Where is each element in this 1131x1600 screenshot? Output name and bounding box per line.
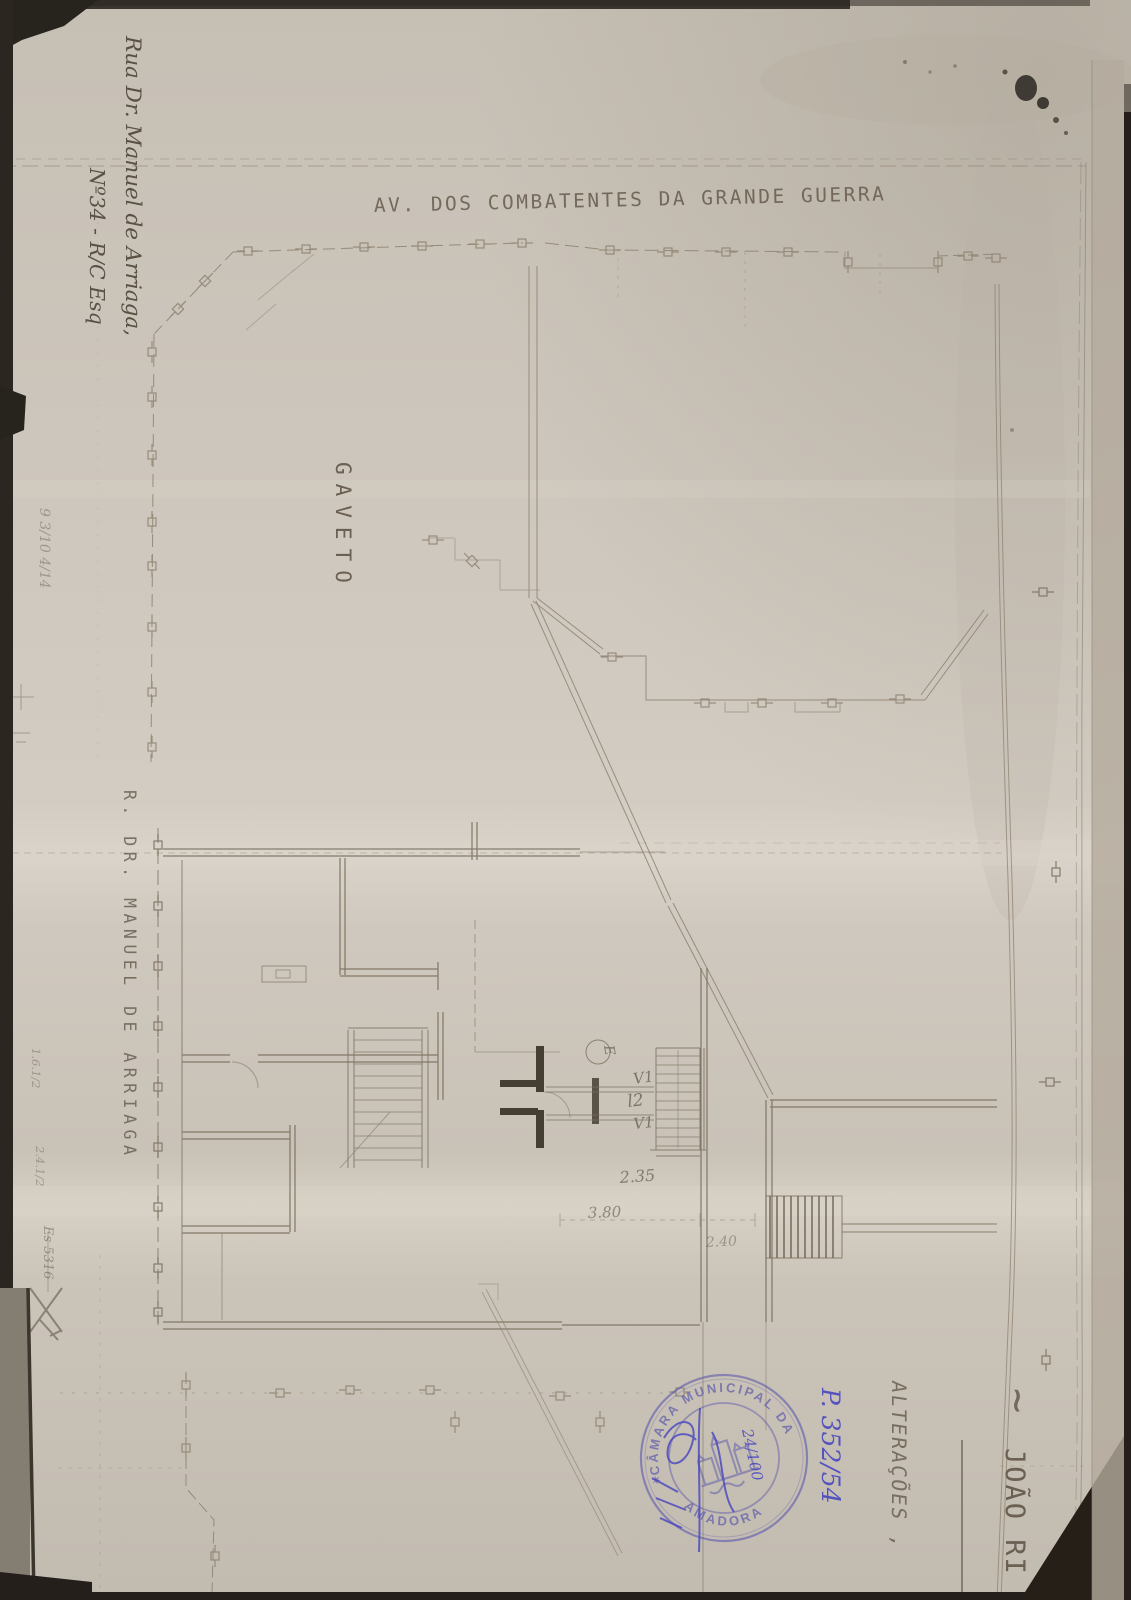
pencil-note-top-margin: 9 3/10 4/14 — [36, 508, 52, 589]
paper — [0, 0, 1131, 1600]
dim-2-35: 2.35 — [618, 1166, 656, 1188]
dim-3-80: 3.80 — [588, 1203, 622, 1222]
subject-alteracoes: ALTERAÇÕES , — [887, 1379, 911, 1551]
pencil-note-1: 1.6.1/2 — [29, 1048, 43, 1088]
street-label-left: R. DR. MANUEL DE ARRIAGA — [120, 790, 139, 1160]
handwritten-address-line1: Rua Dr. Manuel de Arriaga, — [120, 35, 145, 336]
pencil-note-2: 2.4.1/2 — [33, 1145, 47, 1186]
dim-2-40: 2.40 — [704, 1233, 737, 1251]
door-label-l2: l2 — [626, 1090, 644, 1112]
window-label-v1-lower: V1 — [633, 1113, 655, 1133]
applicant-name: JOÃO RI — [999, 1448, 1031, 1576]
fold-shadow-right — [955, 80, 1065, 920]
fold-band-upper — [0, 480, 1090, 498]
process-number: P. 352/54 — [816, 1387, 845, 1504]
scan-shadow-top — [760, 35, 1131, 125]
scanned-floor-plan: AV. DOS COMBATENTES DA GRANDE GUERRA GAV… — [0, 0, 1131, 1600]
window-label-v1-upper: V1 — [632, 1067, 655, 1088]
handwritten-address-line2: Nº34 - R/C Esq — [85, 167, 109, 325]
applicant-tilde: ~ — [994, 1388, 1043, 1413]
corner-label-gaveto: GAVETO — [331, 462, 355, 592]
fold-band-lower — [0, 1186, 1131, 1216]
